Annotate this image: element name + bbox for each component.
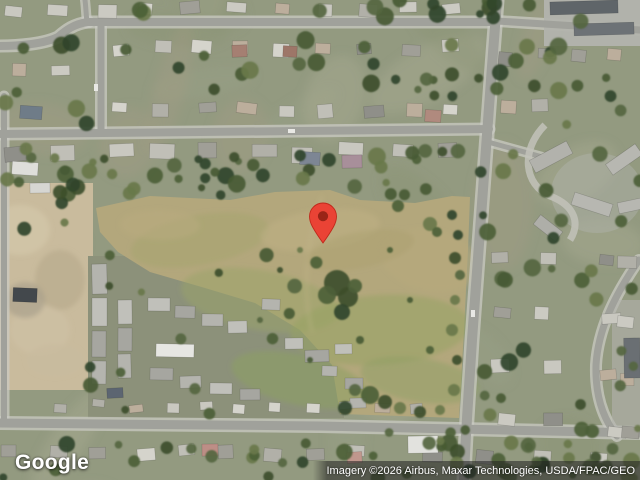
attribution-bar: Imagery ©2026 Airbus, Maxar Technologies… — [313, 461, 640, 480]
map-viewport[interactable]: Google Imagery ©2026 Airbus, Maxar Techn… — [0, 0, 640, 480]
google-logo[interactable]: Google — [15, 451, 89, 475]
satellite-imagery[interactable] — [0, 0, 640, 480]
attribution-text: Imagery ©2026 Airbus, Maxar Technologies… — [327, 465, 636, 477]
pin-dot — [318, 211, 328, 221]
